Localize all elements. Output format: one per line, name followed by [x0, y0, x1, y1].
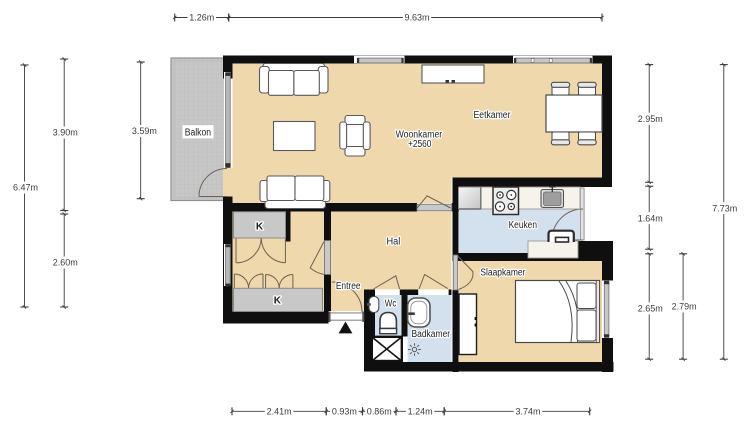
- svg-text:0.93m: 0.93m: [332, 407, 357, 417]
- svg-text:Wc: Wc: [385, 299, 397, 310]
- svg-text:Badkamer: Badkamer: [411, 329, 450, 340]
- svg-text:+2560: +2560: [408, 139, 432, 150]
- svg-text:2.41m: 2.41m: [267, 407, 292, 417]
- svg-text:Eetkamer: Eetkamer: [474, 110, 512, 121]
- svg-text:2.79m: 2.79m: [672, 302, 697, 312]
- svg-text:0.86m: 0.86m: [367, 407, 392, 417]
- svg-text:2.95m: 2.95m: [638, 114, 663, 124]
- svg-text:3.90m: 3.90m: [53, 128, 78, 138]
- svg-text:7.73m: 7.73m: [712, 203, 737, 213]
- svg-text:Hal: Hal: [387, 236, 401, 247]
- svg-text:6.47m: 6.47m: [13, 183, 38, 193]
- svg-text:Keuken: Keuken: [509, 220, 537, 231]
- svg-text:2.65m: 2.65m: [638, 304, 663, 314]
- svg-text:3.74m: 3.74m: [515, 407, 540, 417]
- svg-text:9.63m: 9.63m: [404, 13, 429, 23]
- svg-text:1.24m: 1.24m: [408, 407, 433, 417]
- svg-text:2.60m: 2.60m: [53, 258, 78, 268]
- svg-text:K: K: [274, 296, 282, 307]
- svg-text:K: K: [256, 222, 264, 233]
- svg-text:Slaapkamer: Slaapkamer: [480, 267, 526, 278]
- svg-text:Balkon: Balkon: [185, 128, 211, 139]
- svg-text:1.64m: 1.64m: [638, 213, 663, 223]
- svg-text:Entree: Entree: [336, 281, 361, 292]
- svg-text:3.59m: 3.59m: [132, 126, 157, 136]
- svg-text:1.26m: 1.26m: [189, 13, 214, 23]
